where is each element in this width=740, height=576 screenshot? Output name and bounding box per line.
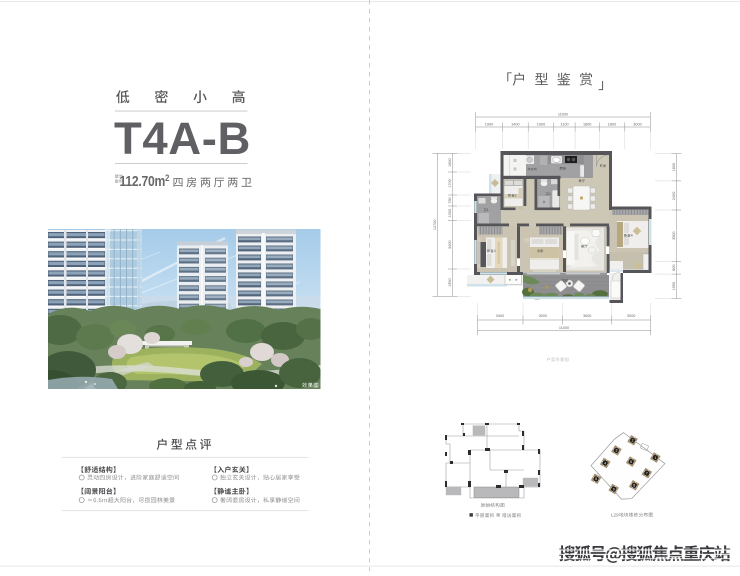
svg-text:1800: 1800 [608, 123, 616, 127]
svg-text:1950: 1950 [448, 278, 452, 286]
svg-text:12700: 12700 [433, 220, 437, 231]
svg-text:1600: 1600 [448, 158, 452, 166]
svg-text:3000: 3000 [627, 314, 635, 318]
svg-text:4: 4 [604, 461, 606, 465]
svg-text:3: 3 [615, 449, 617, 453]
svg-text:1000: 1000 [448, 209, 452, 217]
svg-text:3600: 3600 [583, 314, 591, 318]
svg-text:1100: 1100 [560, 123, 568, 127]
svg-text:7: 7 [646, 471, 648, 475]
svg-text:1950: 1950 [672, 282, 676, 290]
svg-text:760: 760 [448, 197, 452, 203]
svg-text:T4A-B: T4A-B [114, 113, 251, 164]
svg-text:3400: 3400 [448, 241, 452, 249]
svg-text:1600: 1600 [672, 163, 676, 171]
svg-text:1900: 1900 [537, 123, 545, 127]
svg-text:11000: 11000 [559, 326, 569, 330]
svg-text:3000: 3000 [633, 123, 641, 127]
svg-text:3500: 3500 [672, 231, 676, 239]
svg-text:2400: 2400 [672, 192, 676, 200]
svg-text:1400: 1400 [511, 123, 519, 127]
svg-text:1700: 1700 [448, 179, 452, 187]
svg-text:1: 1 [654, 456, 656, 460]
svg-text:9: 9 [613, 487, 615, 491]
svg-text:112.70m2: 112.70m2 [120, 172, 170, 189]
svg-text:2: 2 [632, 439, 634, 443]
svg-text:1900: 1900 [485, 123, 493, 127]
svg-text:3000: 3000 [539, 314, 547, 318]
svg-text:6: 6 [630, 460, 632, 464]
svg-text:11000: 11000 [558, 113, 568, 117]
svg-text:5: 5 [595, 477, 597, 481]
svg-text:1800: 1800 [583, 123, 591, 127]
svg-text:3400: 3400 [496, 314, 504, 318]
svg-text:8: 8 [633, 484, 635, 488]
svg-text:800: 800 [672, 265, 676, 271]
svg-text:L29: L29 [611, 513, 619, 518]
